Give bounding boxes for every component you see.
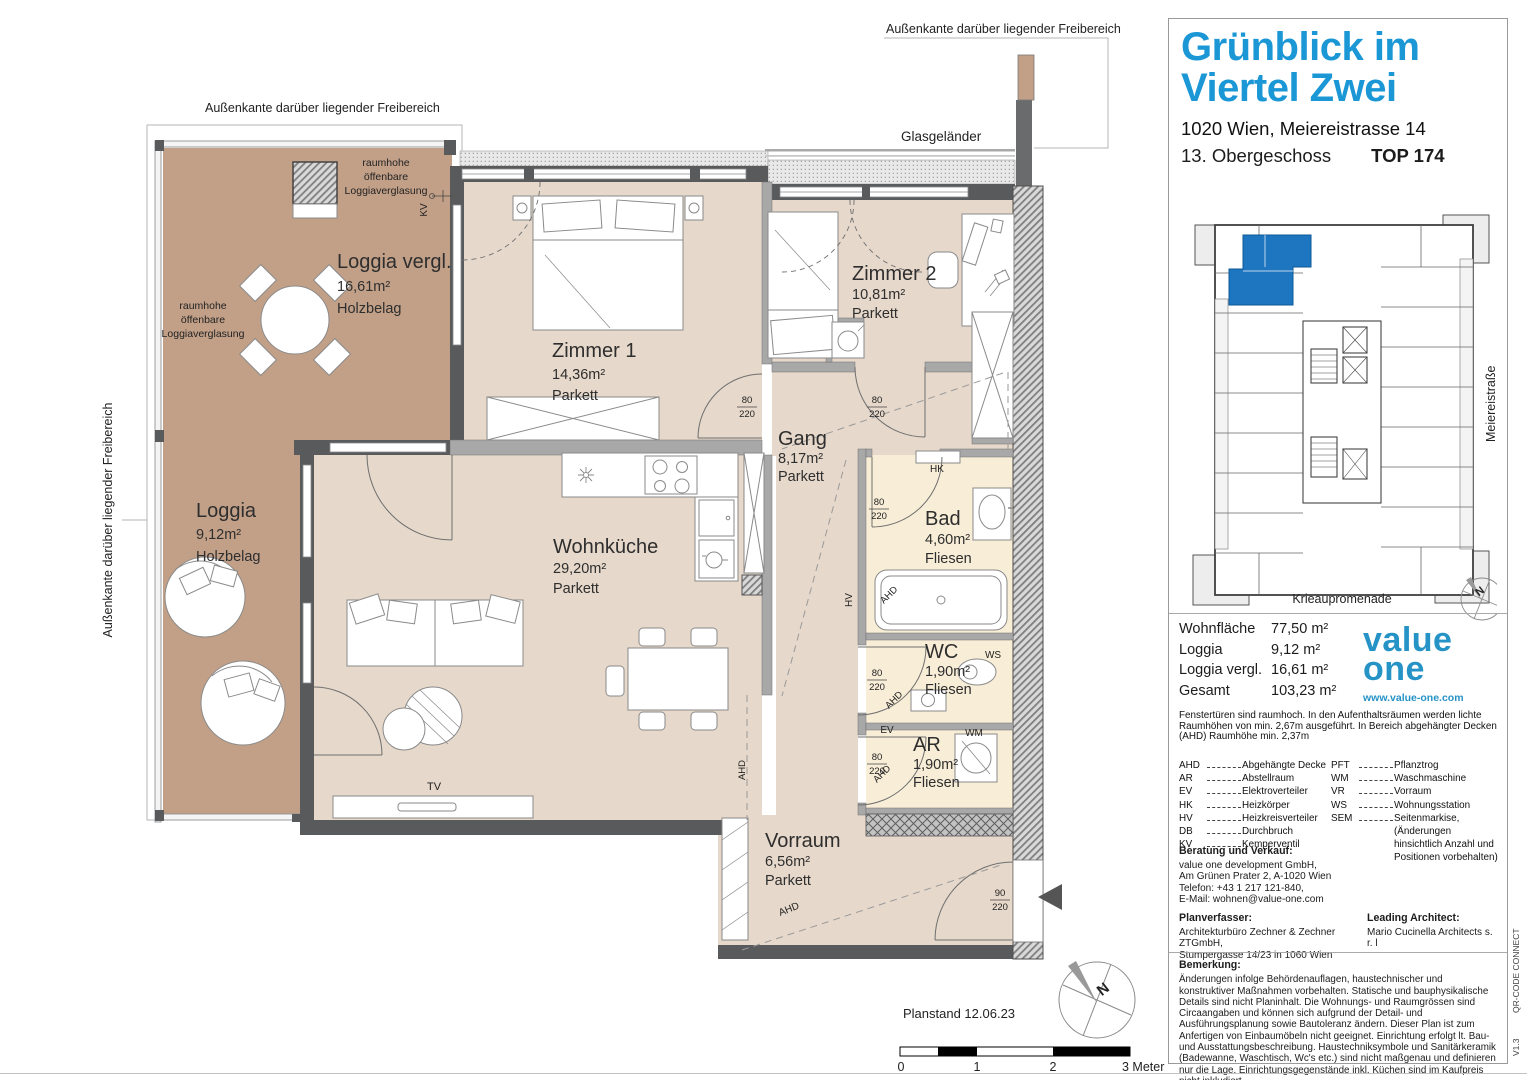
logo-url: www.value-one.com bbox=[1363, 692, 1464, 704]
legend-abbr: HK bbox=[1179, 799, 1207, 812]
legend-leader bbox=[1359, 799, 1393, 808]
room-label: Bad bbox=[925, 508, 961, 530]
contact-block: Beratung und Verkauf: value one developm… bbox=[1179, 846, 1331, 905]
room-label: Parkett bbox=[553, 581, 599, 597]
verglasung-label: raumhohe bbox=[362, 157, 409, 169]
project-floor: 13. Obergeschoss bbox=[1181, 145, 1331, 167]
area-row: Gesamt103,23 m² bbox=[1179, 681, 1336, 702]
scale-tick: 1 bbox=[974, 1060, 981, 1074]
door-dim: 220 bbox=[869, 766, 885, 777]
door-dim: 220 bbox=[739, 409, 755, 420]
architect-lines: Mario Cucinella Architects s. r. l bbox=[1367, 927, 1499, 949]
aussenkante-top-right: Außenkante darüber liegender Freibereich bbox=[886, 22, 1121, 36]
legend-leader bbox=[1207, 759, 1241, 768]
planner-lines: Architekturbüro Zechner & Zechner ZTGmbH… bbox=[1179, 927, 1367, 961]
title-block: Grünblick im Viertel Zwei 1020 Wien, Mei… bbox=[1181, 27, 1496, 167]
text-line: Telefon: +43 1 217 121-840, bbox=[1179, 883, 1331, 894]
side-caption-version: V1.3 bbox=[1511, 1039, 1521, 1057]
scale-tick: 2 bbox=[1050, 1060, 1057, 1074]
legend-row: SEMSeitenmarkise, (Änderungen hinsichtli… bbox=[1331, 812, 1499, 865]
room-label: Parkett bbox=[552, 388, 598, 404]
legend-term: Heizkörper bbox=[1242, 799, 1331, 812]
legend-abbr: AHD bbox=[1179, 759, 1207, 772]
room-label: Parkett bbox=[852, 306, 898, 322]
planner-block: Planverfasser: Architekturbüro Zechner &… bbox=[1179, 913, 1367, 961]
hv-label: HV bbox=[844, 593, 855, 607]
room-label: Vorraum bbox=[765, 830, 841, 852]
floorplan-drawing: Außenkante darüber liegender Freibereich… bbox=[0, 0, 1166, 1080]
area-row: Loggia9,12 m² bbox=[1179, 640, 1336, 661]
room-label: Holzbelag bbox=[337, 301, 402, 317]
door-dim: 80 bbox=[872, 395, 883, 406]
legend-leader bbox=[1359, 759, 1393, 768]
planner-title: Planverfasser: bbox=[1179, 913, 1367, 924]
room-label: Loggia bbox=[196, 500, 257, 522]
legend-row: HVHeizkreisverteiler bbox=[1179, 812, 1331, 825]
room-label: Loggia vergl. bbox=[337, 251, 452, 273]
remark-text: Änderungen infolge Behördenauflagen, hau… bbox=[1179, 974, 1497, 1080]
legend-term: Elektroverteiler bbox=[1242, 785, 1331, 798]
area-label: Gesamt bbox=[1179, 681, 1271, 702]
area-value: 103,23 m² bbox=[1271, 681, 1336, 702]
verglasung-label: raumhohe bbox=[179, 300, 226, 312]
door-dim: 220 bbox=[869, 682, 885, 693]
legend-term: Abgehängte Decke bbox=[1242, 759, 1331, 772]
aussenkante-left: Außenkante darüber liegender Freibereich bbox=[101, 403, 115, 638]
ahd-label: AHD bbox=[737, 760, 748, 780]
architect-block: Leading Architect: Mario Cucinella Archi… bbox=[1367, 913, 1499, 961]
verglasung-label: öffenbare bbox=[364, 171, 408, 183]
legend-leader bbox=[1359, 772, 1393, 781]
panel-divider bbox=[1169, 952, 1507, 953]
keyplan-overview: N bbox=[1191, 209, 1497, 621]
ev-label: EV bbox=[880, 725, 894, 736]
remark-title: Bemerkung: bbox=[1179, 960, 1497, 971]
room-label: 29,20m² bbox=[553, 561, 606, 577]
sheet-edge-line bbox=[0, 1073, 1527, 1074]
door-dim: 220 bbox=[869, 409, 885, 420]
legend-row: WMWaschmaschine bbox=[1331, 772, 1499, 785]
hk-label: HK bbox=[930, 464, 944, 475]
verglasung-label: Loggiaverglasung bbox=[345, 185, 428, 197]
legend-abbr: WS bbox=[1331, 799, 1359, 812]
scale-tick: 3 Meter bbox=[1122, 1060, 1164, 1074]
project-title: Grünblick im Viertel Zwei bbox=[1181, 27, 1496, 109]
planstand-label: Planstand 12.06.23 bbox=[903, 1006, 1015, 1021]
area-label: Wohnfläche bbox=[1179, 619, 1271, 640]
legend-abbr: SEM bbox=[1331, 812, 1359, 865]
legend-row: PFTPflanztrog bbox=[1331, 759, 1499, 772]
plan-sheet: Außenkante darüber liegender Freibereich… bbox=[0, 0, 1527, 1080]
ws-label: WS bbox=[985, 650, 1001, 661]
legend-abbr: EV bbox=[1179, 785, 1207, 798]
room-label: 9,12m² bbox=[196, 527, 241, 543]
scale-bar bbox=[900, 1047, 1130, 1056]
contact-title: Beratung und Verkauf: bbox=[1179, 846, 1331, 857]
area-label: Loggia bbox=[1179, 640, 1271, 661]
legend-row: HKHeizkörper bbox=[1179, 799, 1331, 812]
value-one-logo: value one www.value-one.com bbox=[1363, 627, 1464, 704]
legend-term: Abstellraum bbox=[1242, 772, 1331, 785]
verglasung-label: Loggiaverglasung bbox=[162, 328, 245, 340]
legend-abbr: PFT bbox=[1331, 759, 1359, 772]
room-label: Gang bbox=[778, 428, 827, 450]
text-line: value one development GmbH, bbox=[1179, 860, 1331, 871]
text-line: Architekturbüro Zechner & Zechner ZTGmbH… bbox=[1179, 927, 1367, 949]
info-panel: Grünblick im Viertel Zwei 1020 Wien, Mei… bbox=[1168, 18, 1508, 1064]
door-dim: 80 bbox=[874, 497, 885, 508]
legend-abbr: WM bbox=[1331, 772, 1359, 785]
legend-term: Pflanztrog bbox=[1394, 759, 1499, 772]
legend-leader bbox=[1207, 825, 1241, 834]
door-dim: 220 bbox=[992, 902, 1008, 913]
door-dim: 80 bbox=[872, 668, 883, 679]
area-row: Loggia vergl.16,61 m² bbox=[1179, 660, 1336, 681]
legend-term: Wohnungsstation bbox=[1394, 799, 1499, 812]
area-table: Wohnfläche77,50 m²Loggia9,12 m²Loggia ve… bbox=[1179, 619, 1336, 701]
legend-leader bbox=[1207, 785, 1241, 794]
shaft-crosshatch bbox=[866, 814, 1013, 836]
room-label: Zimmer 1 bbox=[552, 340, 636, 362]
door-dim: 90 bbox=[995, 888, 1006, 899]
room-label: Fliesen bbox=[925, 682, 972, 698]
aussenkante-top-left: Außenkante darüber liegender Freibereich bbox=[205, 101, 440, 115]
side-caption-qr: QR-CODE CONNECT bbox=[1511, 928, 1521, 1013]
room-label: WC bbox=[925, 641, 958, 663]
room-label: 4,60m² bbox=[925, 532, 970, 548]
legend-row: WSWohnungsstation bbox=[1331, 799, 1499, 812]
room-label: 16,61m² bbox=[337, 279, 390, 295]
remark-block: Bemerkung: Änderungen infolge Behördenau… bbox=[1179, 960, 1497, 1080]
room-label: Holzbelag bbox=[196, 549, 261, 565]
architect-title: Leading Architect: bbox=[1367, 913, 1499, 924]
legend-row: AHDAbgehängte Decke bbox=[1179, 759, 1331, 772]
room-label: 1,90m² bbox=[925, 664, 970, 680]
legend-term: Seitenmarkise, (Änderungen hinsichtlich … bbox=[1394, 812, 1499, 865]
contact-lines: value one development GmbH,Am Grünen Pra… bbox=[1179, 860, 1331, 905]
door-dim: 220 bbox=[871, 511, 887, 522]
legend-term: Vorraum bbox=[1394, 785, 1499, 798]
door-dim: 80 bbox=[742, 395, 753, 406]
party-wall bbox=[1013, 186, 1043, 959]
panel-divider bbox=[1169, 613, 1507, 614]
street-label-meiereistrasse: Meiereistraße bbox=[1484, 366, 1498, 442]
room-label: 8,17m² bbox=[778, 451, 823, 467]
legend-abbr: AR bbox=[1179, 772, 1207, 785]
tv-label: TV bbox=[427, 781, 442, 793]
room-label: Fliesen bbox=[913, 775, 960, 791]
north-label: N bbox=[1094, 979, 1113, 999]
legend-row: ARAbstellraum bbox=[1179, 772, 1331, 785]
door-dim: 80 bbox=[872, 752, 883, 763]
room-label: Fliesen bbox=[925, 551, 972, 567]
keyplan-core bbox=[1303, 321, 1381, 503]
legend-col2: PFTPflanztrogWMWaschmaschineVRVorraumWSW… bbox=[1331, 759, 1499, 865]
legend-leader bbox=[1207, 772, 1241, 781]
legend-term: Waschmaschine bbox=[1394, 772, 1499, 785]
area-label: Loggia vergl. bbox=[1179, 660, 1271, 681]
legend-leader bbox=[1207, 812, 1241, 821]
room-label: Zimmer 2 bbox=[852, 263, 936, 285]
project-address: 1020 Wien, Meiereistrasse 14 bbox=[1181, 118, 1496, 140]
north-compass bbox=[1059, 961, 1135, 1038]
room-label: 14,36m² bbox=[552, 367, 605, 383]
legend-abbr: HV bbox=[1179, 812, 1207, 825]
legend-leader bbox=[1359, 812, 1393, 821]
room-label: Parkett bbox=[765, 873, 811, 889]
verglasung-label: öffenbare bbox=[181, 314, 225, 326]
legend-term: Heizkreisverteiler bbox=[1242, 812, 1331, 825]
area-value: 16,61 m² bbox=[1271, 660, 1328, 681]
area-row: Wohnfläche77,50 m² bbox=[1179, 619, 1336, 640]
legend-term: Durchbruch bbox=[1242, 825, 1331, 838]
area-value: 77,50 m² bbox=[1271, 619, 1328, 640]
legend-abbr: VR bbox=[1331, 785, 1359, 798]
room-label: AR bbox=[913, 734, 941, 756]
room-label: Wohnküche bbox=[553, 536, 658, 558]
street-label-krieaupromenade: Krieaupromenade bbox=[1262, 592, 1422, 606]
legend-abbr: DB bbox=[1179, 825, 1207, 838]
glass-railing bbox=[765, 149, 1015, 157]
wm-label: WM bbox=[965, 728, 983, 739]
scale-tick: 0 bbox=[898, 1060, 905, 1074]
room-label: Parkett bbox=[778, 469, 824, 485]
room-label: 6,56m² bbox=[765, 854, 810, 870]
legend-row: EVElektroverteiler bbox=[1179, 785, 1331, 798]
room-label: 10,81m² bbox=[852, 287, 905, 303]
text-line: Am Grünen Prater 2, A-1020 Wien bbox=[1179, 871, 1331, 882]
legend-row: DBDurchbruch bbox=[1179, 825, 1331, 838]
unit-number: TOP 174 bbox=[1371, 145, 1444, 167]
legend-row: VRVorraum bbox=[1331, 785, 1499, 798]
area-value: 9,12 m² bbox=[1271, 640, 1320, 661]
raumhoehe-note: Fenstertüren sind raumhoch. In den Aufen… bbox=[1179, 711, 1499, 743]
legend-leader bbox=[1207, 799, 1241, 808]
glasgelaender-label: Glasgeländer bbox=[901, 129, 982, 144]
text-line: Mario Cucinella Architects s. r. l bbox=[1367, 927, 1499, 949]
text-line: E-Mail: wohnen@value-one.com bbox=[1179, 894, 1331, 905]
kv-label: KV bbox=[419, 203, 430, 217]
legend-leader bbox=[1359, 785, 1393, 794]
room-label: 1,90m² bbox=[913, 757, 958, 773]
